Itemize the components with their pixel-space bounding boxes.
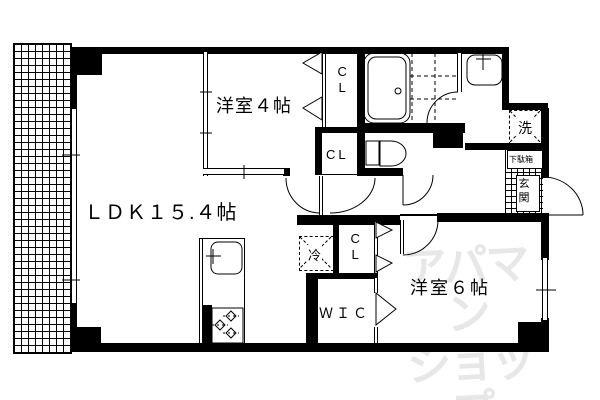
folding-door-symbols	[303, 52, 396, 325]
fridge-label: 冷	[307, 245, 322, 264]
bathtub	[364, 53, 410, 123]
floor-plan: アパマン ショップ	[0, 0, 600, 400]
stove	[212, 308, 243, 343]
closet-lower-label: CL	[348, 231, 362, 264]
laundry-label: 洗	[517, 118, 533, 138]
closet-hall-label: CL	[326, 147, 349, 162]
bedroom6-label: 洋室６帖	[410, 274, 490, 300]
wic-label: ＷＩＣ	[319, 303, 370, 323]
ldk-label: ＬＤＫ１５.４帖	[84, 196, 238, 225]
bath-tile-grid	[410, 53, 457, 123]
bedroom4-label: 洋室４帖	[216, 92, 292, 118]
entrance-label: 玄関	[518, 178, 530, 206]
washbasin	[467, 47, 502, 85]
kitchen-sink	[206, 242, 242, 274]
toilet	[366, 141, 406, 166]
closet-upper-label: CL	[335, 64, 349, 97]
shoe-cabinet-label: 下駄箱	[509, 154, 533, 165]
